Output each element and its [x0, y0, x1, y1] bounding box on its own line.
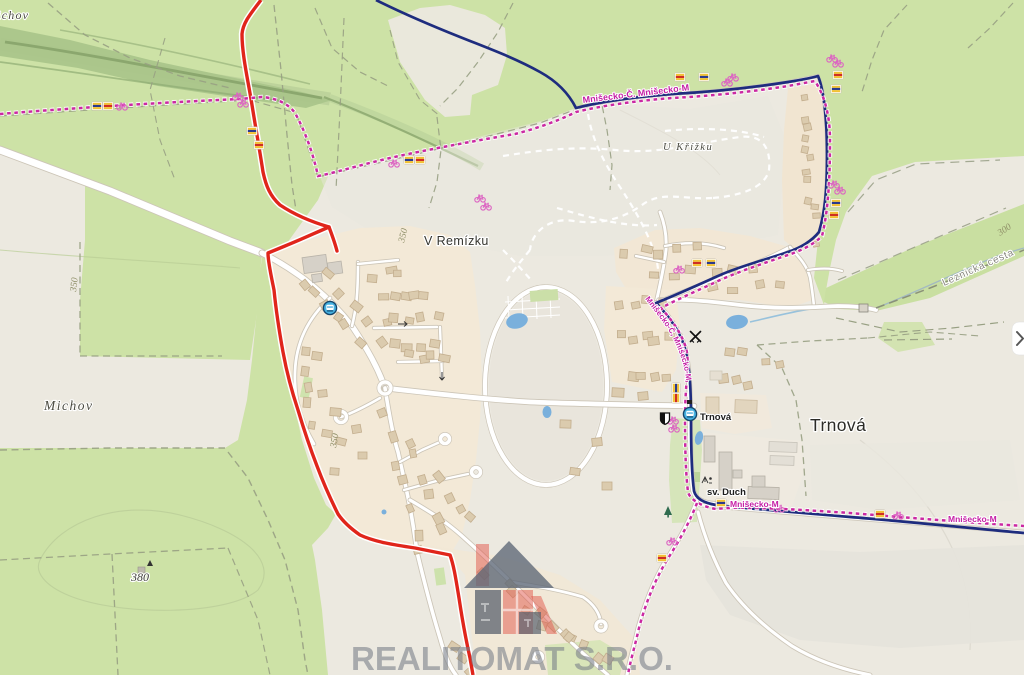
svg-text:380: 380: [130, 570, 149, 584]
svg-text:Trnová: Trnová: [700, 412, 732, 423]
svg-text:Trnová: Trnová: [810, 415, 866, 435]
svg-text:350: 350: [69, 277, 81, 294]
svg-text:Mnišecko-M: Mnišecko-M: [730, 499, 779, 509]
svg-text:Michov: Michov: [43, 398, 93, 413]
svg-text:V Remízku: V Remízku: [424, 234, 489, 248]
svg-text:U Křížku: U Křížku: [663, 142, 713, 153]
svg-text:Michov: Michov: [0, 8, 29, 22]
svg-text:REALITOMAT S.R.O.: REALITOMAT S.R.O.: [351, 640, 673, 675]
svg-text:Mnišecko-M: Mnišecko-M: [948, 514, 997, 524]
svg-text:sv. Duch: sv. Duch: [707, 487, 746, 498]
